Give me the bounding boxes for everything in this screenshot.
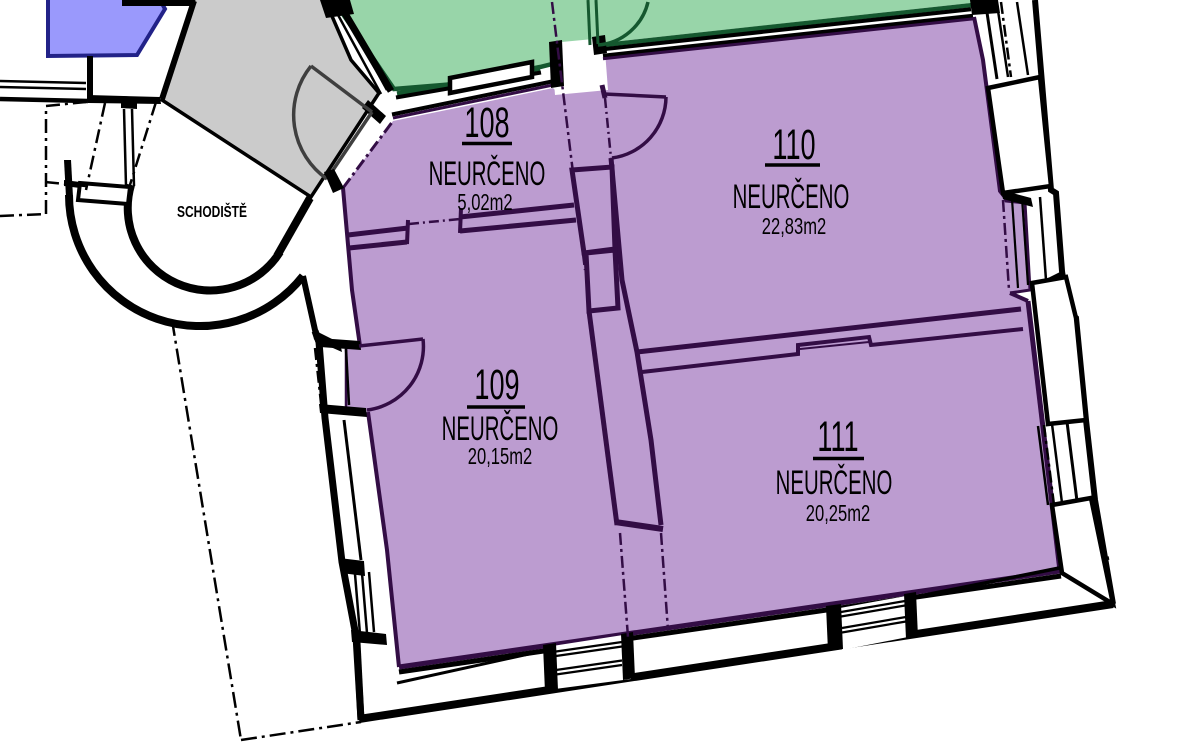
svg-text:NEURČENO: NEURČENO: [442, 410, 559, 448]
svg-text:108: 108: [464, 98, 509, 147]
svg-text:20,15m2: 20,15m2: [468, 444, 532, 469]
svg-text:109: 109: [474, 360, 519, 409]
svg-text:NEURČENO: NEURČENO: [733, 178, 850, 216]
svg-text:20,25m2: 20,25m2: [806, 501, 870, 526]
svg-text:NEURČENO: NEURČENO: [776, 464, 893, 502]
svg-text:SCHODIŠTĚ: SCHODIŠTĚ: [177, 201, 247, 220]
svg-text:NEURČENO: NEURČENO: [429, 155, 546, 193]
svg-text:110: 110: [772, 120, 815, 169]
svg-text:111: 111: [817, 412, 858, 461]
svg-text:5,02m2: 5,02m2: [457, 190, 512, 215]
svg-text:22,83m2: 22,83m2: [762, 214, 826, 239]
